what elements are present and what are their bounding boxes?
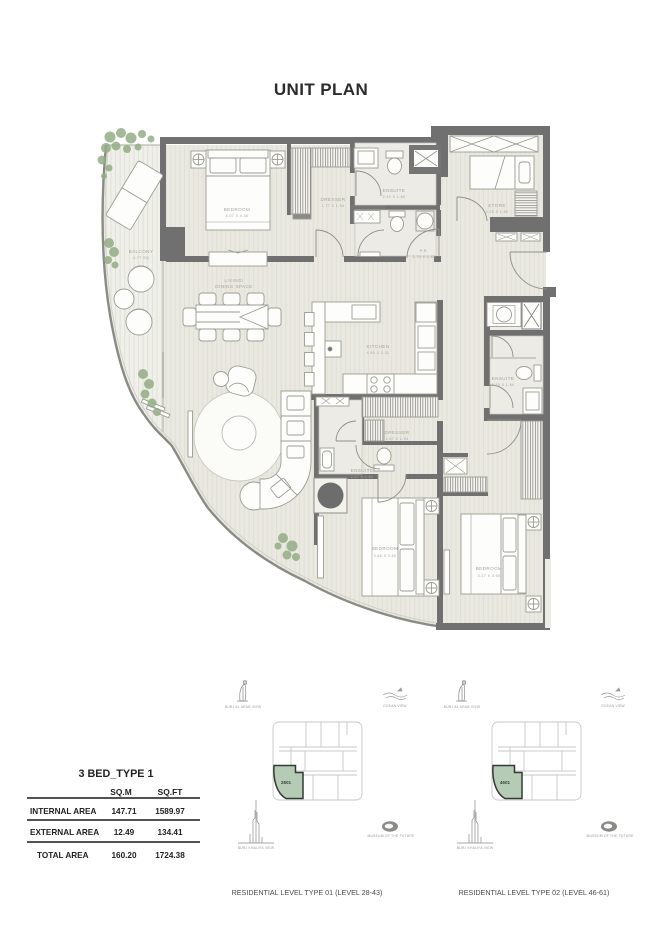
svg-text:160.20: 160.20 — [111, 851, 136, 860]
svg-text:BEDROOM: BEDROOM — [476, 566, 503, 571]
svg-text:1724.38: 1724.38 — [155, 851, 185, 860]
svg-text:TOTAL AREA: TOTAL AREA — [37, 851, 89, 860]
svg-text:147.71: 147.71 — [111, 807, 136, 816]
svg-text:DRESSER: DRESSER — [384, 430, 409, 435]
svg-text:STORE: STORE — [488, 203, 506, 208]
svg-text:SQ.FT: SQ.FT — [158, 787, 184, 797]
svg-text:BURJ KHALIFA VIEW: BURJ KHALIFA VIEW — [457, 846, 494, 850]
svg-text:3 BED_TYPE 1: 3 BED_TYPE 1 — [78, 768, 153, 780]
svg-text:2.20 X 1.80: 2.20 X 1.80 — [486, 210, 509, 214]
svg-text:2.07 X 1.60: 2.07 X 1.60 — [351, 475, 374, 479]
svg-text:MUSEUM OF THE FUTURE: MUSEUM OF THE FUTURE — [586, 834, 634, 838]
svg-text:KITCHEN: KITCHEN — [367, 344, 390, 349]
svg-text:4.77 SQ: 4.77 SQ — [133, 256, 149, 260]
svg-text:ENSUITE: ENSUITE — [383, 188, 406, 193]
svg-text:RESIDENTIAL LEVEL TYPE 02 (LEV: RESIDENTIAL LEVEL TYPE 02 (LEVEL 46-61) — [459, 888, 610, 897]
svg-text:SQ.M: SQ.M — [110, 787, 131, 797]
svg-text:RESIDENTIAL LEVEL TYPE 01 (LEV: RESIDENTIAL LEVEL TYPE 01 (LEVEL 28-43) — [232, 888, 383, 897]
svg-text:2801: 2801 — [281, 780, 292, 785]
svg-text:134.41: 134.41 — [157, 828, 182, 837]
svg-text:1.77 X 1.94: 1.77 X 1.94 — [322, 204, 345, 208]
svg-text:BURJ KHALIFA VIEW: BURJ KHALIFA VIEW — [238, 846, 275, 850]
svg-text:2.30 X 1.60: 2.30 X 1.60 — [492, 383, 515, 387]
svg-text:BALCONY: BALCONY — [129, 249, 154, 254]
svg-text:BURJ AL ARAB VIEW: BURJ AL ARAB VIEW — [444, 705, 481, 709]
svg-text:ENSUITE: ENSUITE — [351, 468, 374, 473]
svg-text:DRESSER: DRESSER — [320, 197, 345, 202]
svg-text:EXTERNAL AREA: EXTERNAL AREA — [30, 828, 99, 837]
svg-text:ENSUITE: ENSUITE — [492, 376, 515, 381]
svg-text:1589.97: 1589.97 — [155, 807, 185, 816]
svg-text:LIVING/: LIVING/ — [224, 278, 243, 283]
svg-text:4.07 X 4.30: 4.07 X 4.30 — [226, 214, 249, 218]
svg-text:OCEAN VIEW: OCEAN VIEW — [601, 704, 625, 708]
svg-text:3.27 X 3.60: 3.27 X 3.60 — [478, 574, 501, 578]
svg-text:4601: 4601 — [500, 780, 511, 785]
svg-text:3.66 X 3.60: 3.66 X 3.60 — [374, 554, 397, 558]
svg-text:BEDROOM: BEDROOM — [224, 207, 251, 212]
svg-text:1.67 X 1.94: 1.67 X 1.94 — [386, 437, 409, 441]
svg-text:2.40 X 1.60: 2.40 X 1.60 — [383, 195, 406, 199]
svg-text:DINING SPACE: DINING SPACE — [215, 284, 252, 289]
svg-text:BEDROOM: BEDROOM — [372, 546, 399, 551]
svg-text:BURJ AL ARAB VIEW: BURJ AL ARAB VIEW — [225, 705, 262, 709]
svg-text:UNIT PLAN: UNIT PLAN — [274, 80, 368, 99]
svg-text:1.70 X 1.80: 1.70 X 1.80 — [413, 255, 436, 259]
svg-text:MUSEUM OF THE FUTURE: MUSEUM OF THE FUTURE — [367, 834, 415, 838]
svg-text:INTERNAL AREA: INTERNAL AREA — [30, 807, 96, 816]
svg-text:12.49: 12.49 — [114, 828, 135, 837]
svg-text:OCEAN VIEW: OCEAN VIEW — [383, 704, 407, 708]
svg-text:P.R.: P.R. — [420, 248, 429, 253]
svg-text:4.50 X 2.31: 4.50 X 2.31 — [367, 351, 390, 355]
